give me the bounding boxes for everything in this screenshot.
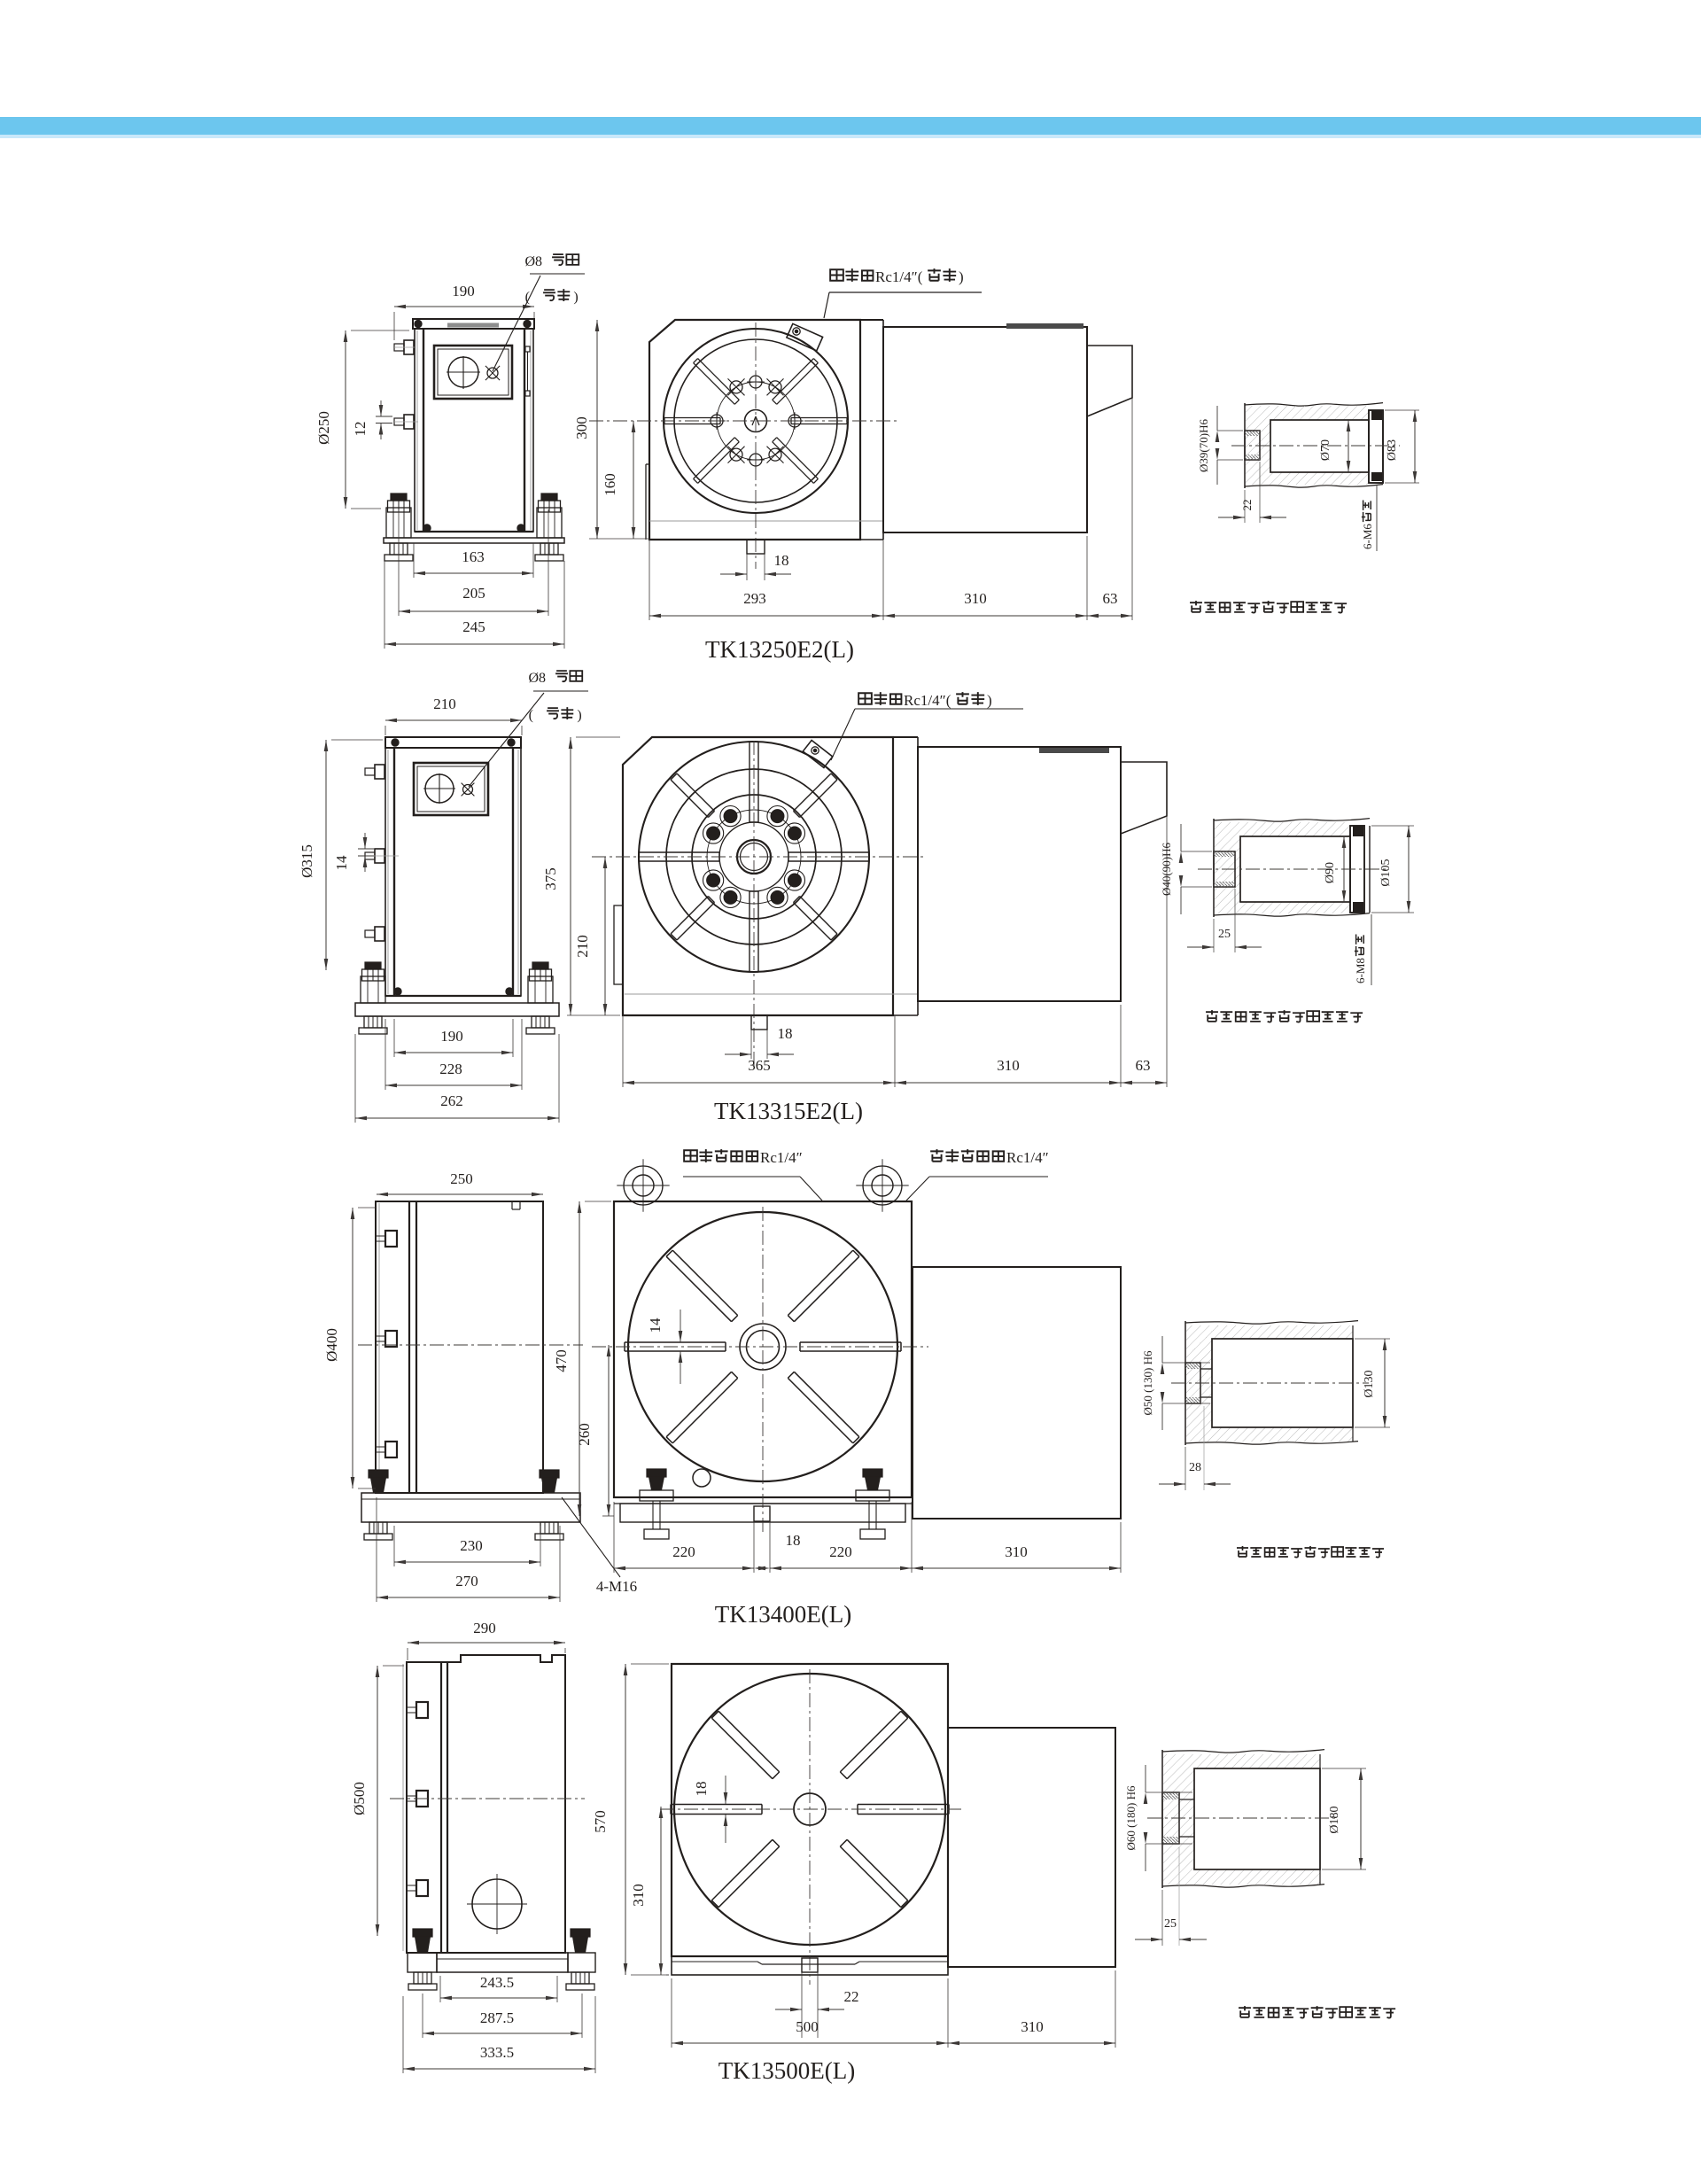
svg-text:220: 220 bbox=[672, 1543, 695, 1560]
svg-text:210: 210 bbox=[433, 696, 456, 712]
svg-text:270: 270 bbox=[455, 1573, 478, 1589]
svg-text:14: 14 bbox=[333, 855, 350, 871]
svg-text:25: 25 bbox=[1218, 928, 1231, 941]
svg-text:310: 310 bbox=[997, 1057, 1020, 1074]
svg-text:TK13400E(L): TK13400E(L) bbox=[715, 1601, 851, 1628]
svg-text:Rc1/4″(: Rc1/4″( bbox=[875, 268, 923, 285]
svg-text:500: 500 bbox=[796, 2018, 819, 2035]
svg-text:22: 22 bbox=[1240, 500, 1254, 511]
svg-text:TK13250E2(L): TK13250E2(L) bbox=[705, 636, 854, 663]
svg-text:228: 228 bbox=[439, 1061, 462, 1077]
svg-text:375: 375 bbox=[542, 867, 559, 890]
svg-text:22: 22 bbox=[844, 1988, 859, 2005]
svg-text:28: 28 bbox=[1189, 1461, 1201, 1474]
svg-text:): ) bbox=[959, 268, 964, 285]
svg-text:220: 220 bbox=[829, 1543, 852, 1560]
svg-text:210: 210 bbox=[574, 935, 591, 958]
svg-text:290: 290 bbox=[473, 1620, 496, 1636]
svg-text:TK13315E2(L): TK13315E2(L) bbox=[714, 1098, 863, 1124]
svg-text:163: 163 bbox=[462, 548, 485, 565]
svg-text:Ø40(90)H6: Ø40(90)H6 bbox=[1160, 843, 1173, 896]
svg-text:310: 310 bbox=[964, 590, 987, 607]
svg-text:Ø105: Ø105 bbox=[1379, 859, 1393, 886]
svg-text:6-M6: 6-M6 bbox=[1361, 524, 1374, 549]
svg-text:300: 300 bbox=[573, 416, 590, 439]
svg-text:18: 18 bbox=[786, 1532, 801, 1549]
svg-text:Ø39(70)H6: Ø39(70)H6 bbox=[1197, 419, 1210, 472]
svg-text:): ) bbox=[577, 708, 581, 723]
svg-text:Ø90: Ø90 bbox=[1324, 862, 1337, 883]
svg-text:Rc1/4″: Rc1/4″ bbox=[1006, 1149, 1049, 1166]
svg-text:18: 18 bbox=[774, 552, 789, 569]
svg-text:6-M8: 6-M8 bbox=[1354, 958, 1367, 983]
svg-text:333.5: 333.5 bbox=[480, 2044, 514, 2061]
svg-text:Ø50 (130) H6: Ø50 (130) H6 bbox=[1141, 1350, 1154, 1415]
svg-text:Ø315: Ø315 bbox=[299, 844, 315, 878]
svg-text:4-M16: 4-M16 bbox=[596, 1578, 637, 1595]
svg-text:(: ( bbox=[529, 708, 533, 723]
svg-text:63: 63 bbox=[1103, 590, 1118, 607]
svg-text:TK13500E(L): TK13500E(L) bbox=[718, 2057, 855, 2084]
svg-text:Ø250: Ø250 bbox=[315, 411, 332, 445]
svg-text:18: 18 bbox=[693, 1782, 710, 1797]
svg-text:63: 63 bbox=[1136, 1057, 1151, 1074]
svg-text:Rc1/4″(: Rc1/4″( bbox=[904, 692, 951, 709]
svg-text:18: 18 bbox=[778, 1025, 793, 1042]
svg-text:190: 190 bbox=[440, 1028, 463, 1045]
svg-text:243.5: 243.5 bbox=[480, 1974, 514, 1991]
svg-text:Ø400: Ø400 bbox=[323, 1328, 340, 1362]
svg-text:25: 25 bbox=[1164, 1917, 1177, 1931]
svg-text:Ø8: Ø8 bbox=[524, 254, 542, 269]
svg-text:Ø180: Ø180 bbox=[1328, 1806, 1341, 1833]
svg-text:260: 260 bbox=[576, 1423, 593, 1446]
svg-text:470: 470 bbox=[553, 1349, 570, 1372]
svg-text:Ø70: Ø70 bbox=[1319, 439, 1332, 461]
svg-text:365: 365 bbox=[748, 1057, 771, 1074]
svg-text:): ) bbox=[573, 290, 578, 305]
svg-text:310: 310 bbox=[1021, 2018, 1044, 2035]
svg-text:14: 14 bbox=[647, 1317, 664, 1333]
svg-text:250: 250 bbox=[450, 1170, 473, 1187]
svg-text:205: 205 bbox=[462, 585, 485, 602]
svg-text:Ø83: Ø83 bbox=[1386, 439, 1399, 461]
svg-text:160: 160 bbox=[602, 473, 618, 496]
svg-text:190: 190 bbox=[452, 283, 475, 299]
svg-text:12: 12 bbox=[352, 422, 369, 437]
svg-text:Ø130: Ø130 bbox=[1363, 1370, 1376, 1397]
svg-text:245: 245 bbox=[462, 618, 485, 635]
svg-text:570: 570 bbox=[592, 1810, 609, 1833]
svg-text:230: 230 bbox=[460, 1537, 483, 1554]
svg-text:262: 262 bbox=[440, 1092, 463, 1109]
svg-text:310: 310 bbox=[1005, 1543, 1028, 1560]
svg-text:Ø8: Ø8 bbox=[528, 671, 546, 686]
svg-text:Ø60 (180) H6: Ø60 (180) H6 bbox=[1124, 1785, 1138, 1850]
svg-text:): ) bbox=[987, 692, 992, 709]
svg-text:Ø500: Ø500 bbox=[351, 1782, 368, 1815]
svg-text:293: 293 bbox=[743, 590, 766, 607]
svg-text:287.5: 287.5 bbox=[480, 2009, 514, 2026]
svg-text:Rc1/4″: Rc1/4″ bbox=[760, 1149, 803, 1166]
svg-text:310: 310 bbox=[630, 1884, 647, 1907]
